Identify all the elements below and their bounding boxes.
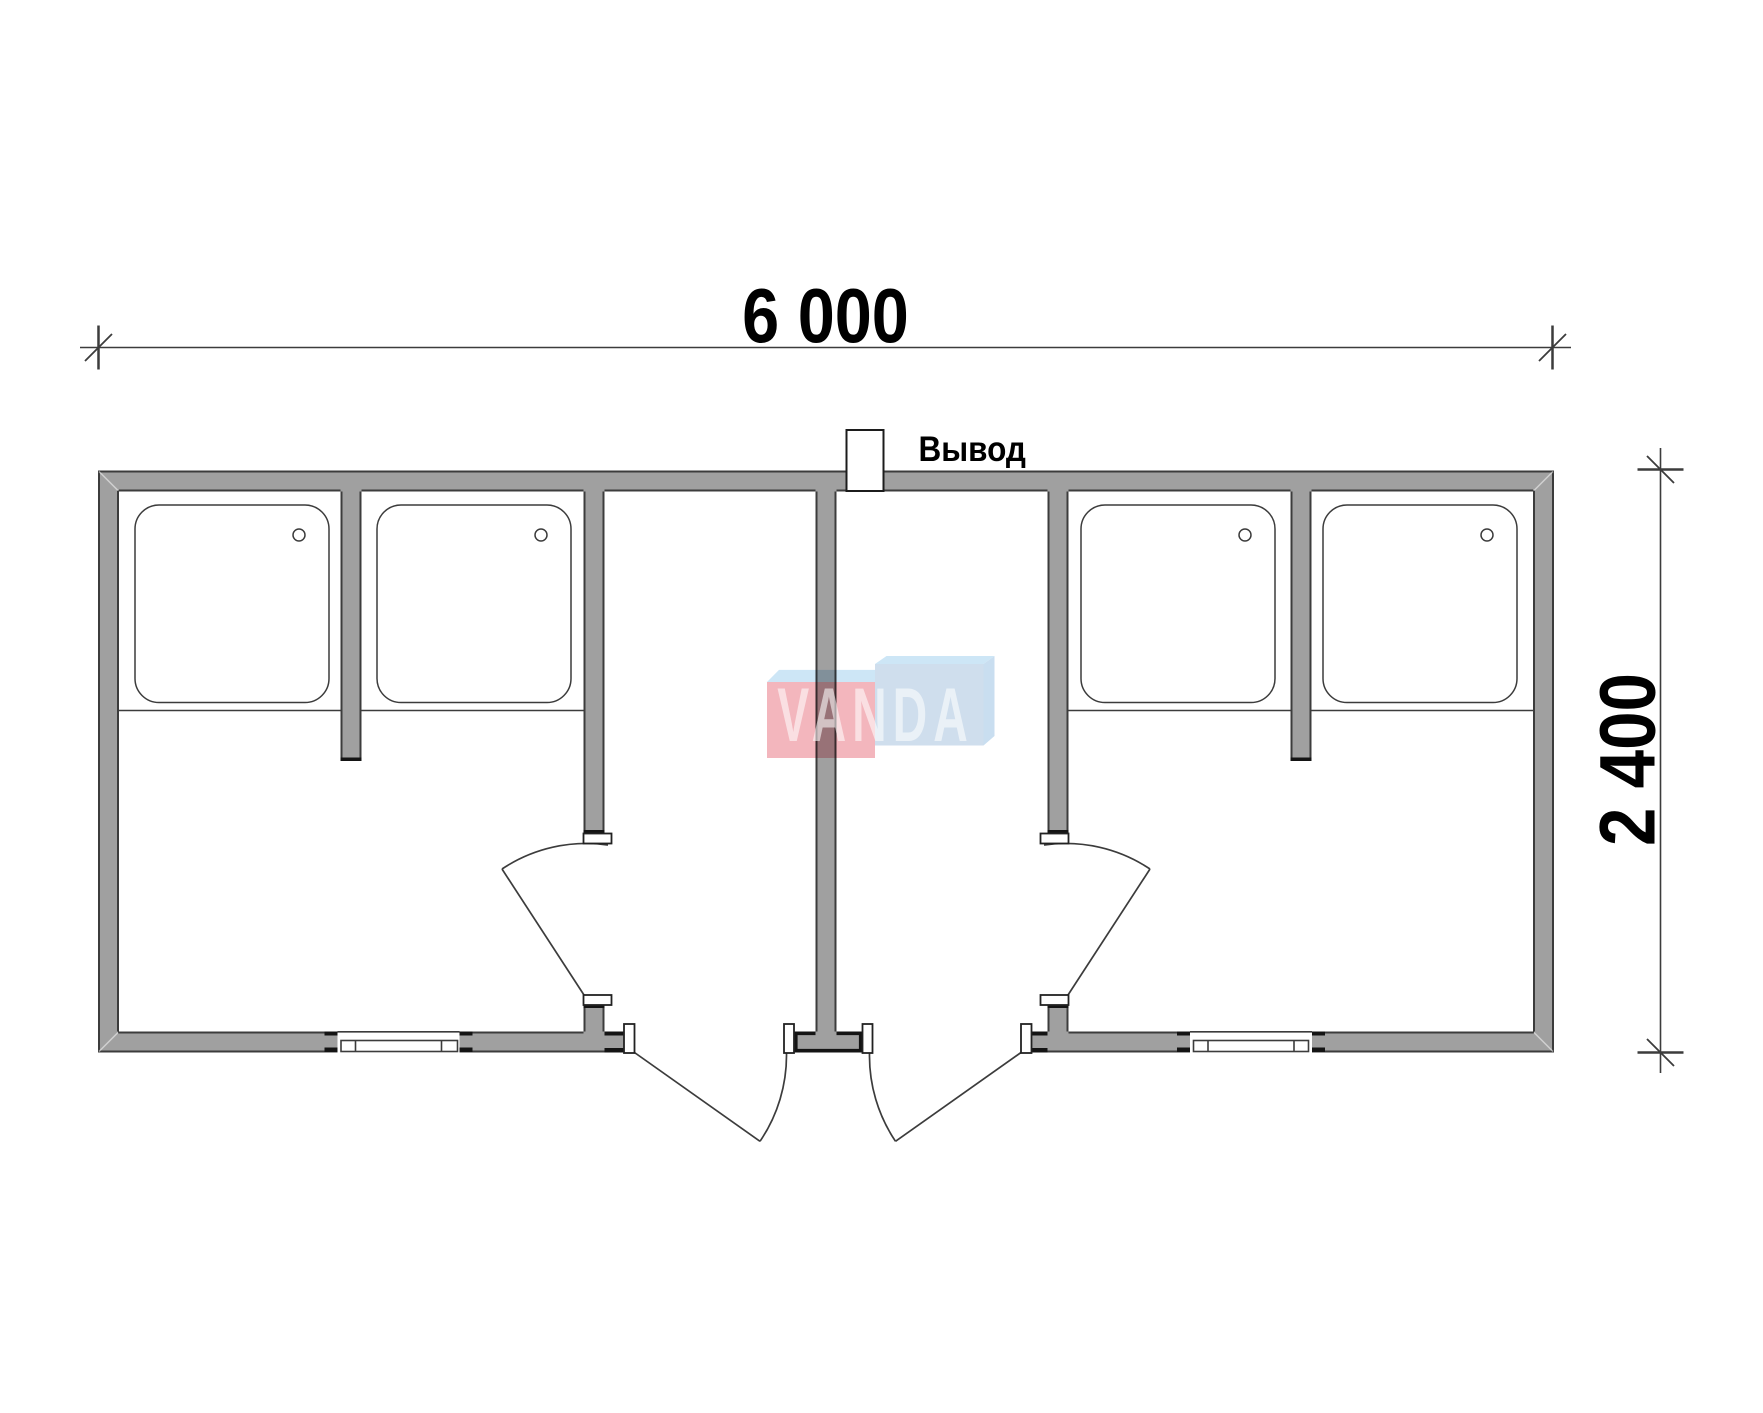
svg-text:Вывод: Вывод <box>919 431 1026 470</box>
svg-text:2 400: 2 400 <box>1583 673 1671 846</box>
svg-text:VANDA: VANDA <box>777 674 974 758</box>
svg-text:6 000: 6 000 <box>742 274 909 360</box>
